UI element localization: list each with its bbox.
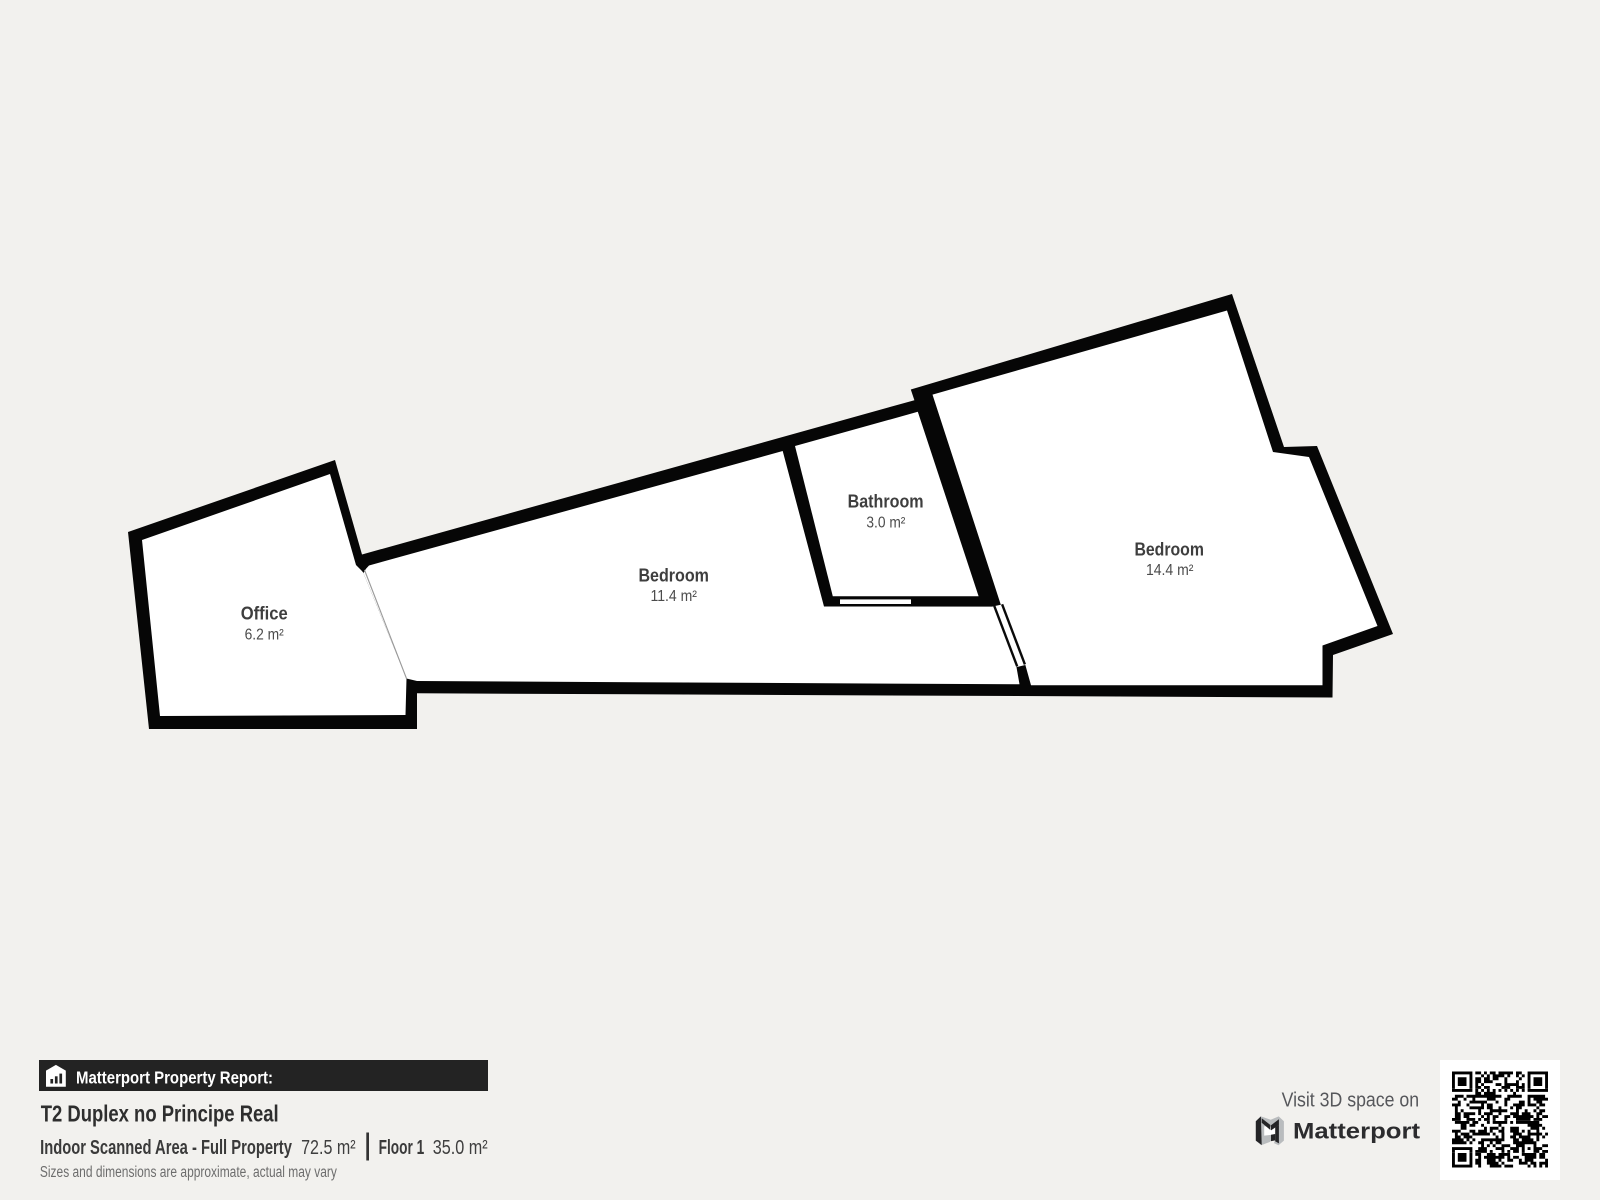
svg-text:Office: Office — [241, 603, 288, 624]
svg-text:Bedroom: Bedroom — [1134, 538, 1204, 559]
svg-text:Indoor Scanned Area - Full Pro: Indoor Scanned Area - Full Property — [40, 1136, 292, 1159]
svg-text:T2 Duplex no Principe Real: T2 Duplex no Principe Real — [41, 1101, 279, 1127]
svg-text:72.5 m²: 72.5 m² — [301, 1136, 356, 1159]
svg-text:14.4 m²: 14.4 m² — [1146, 562, 1194, 579]
svg-text:Visit 3D space on: Visit 3D space on — [1282, 1090, 1420, 1112]
svg-text:Bedroom: Bedroom — [638, 565, 709, 586]
svg-text:35.0 m²: 35.0 m² — [433, 1136, 488, 1159]
svg-text:Floor 1: Floor 1 — [379, 1136, 425, 1159]
svg-text:Sizes and dimensions are appro: Sizes and dimensions are approximate, ac… — [40, 1164, 337, 1181]
svg-text:Matterport: Matterport — [1293, 1119, 1421, 1144]
svg-text:3.0 m²: 3.0 m² — [866, 515, 905, 532]
svg-text:6.2 m²: 6.2 m² — [245, 627, 284, 644]
svg-text:Bathroom: Bathroom — [848, 491, 924, 512]
svg-text:11.4 m²: 11.4 m² — [650, 588, 697, 605]
svg-text:Matterport Property Report:: Matterport Property Report: — [76, 1067, 273, 1087]
